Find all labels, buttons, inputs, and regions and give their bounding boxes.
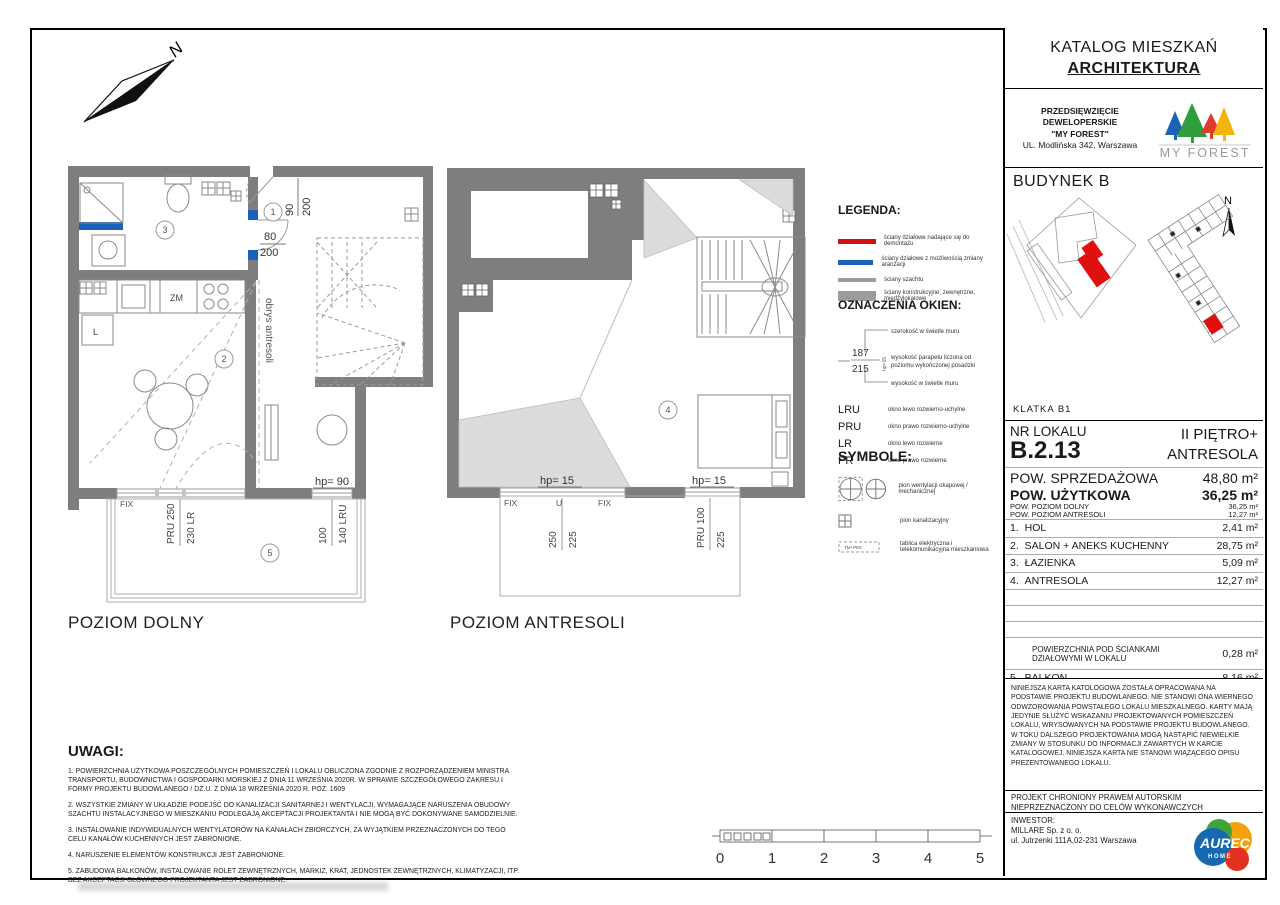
code-desc: okno lewo rozwierno-uchylne [888, 407, 965, 413]
sewage-symbol-icon [838, 514, 890, 528]
room-table: 1. HOL 2,41 m² 2. SALON + ANEKS KUCHENNY… [1005, 519, 1263, 686]
uwagi-item-1: 1. POWIERZCHNIA UŻYTKOWA POSZCZEGÓLNYCH … [68, 768, 520, 795]
empty-row [1005, 621, 1263, 637]
developer-line1: PRZEDSIĘWZIĘCIE [1005, 106, 1155, 117]
antresola-outline [90, 280, 259, 490]
floorplan-upper: 4 hp= 15 FIX U FIX 250 225 hp= 15 PRU 10… [440, 158, 820, 628]
caption-lower: POZIOM DOLNY [68, 613, 204, 633]
room1-marker: 1 [270, 207, 275, 217]
room-no: 3. [1010, 557, 1019, 569]
copyright-line1: PROJEKT CHRONIONY PRAWEM AUTORSKIM [1011, 793, 1257, 803]
sewage-symbol-label: pion kanalizacyjny [900, 518, 949, 524]
floor-label-2: ANTRESOLA [1167, 445, 1258, 465]
ann-width: szerokość w świetle muru [891, 329, 959, 335]
empty-row [1005, 605, 1263, 621]
window-key-title: OZNACZENIA OKIEN: [838, 298, 1003, 312]
symbols: SYMBOLE: pion wentylacji okapowej / mech… [838, 448, 1003, 554]
hp90-label: hp= 90 [315, 476, 349, 488]
table-and-chairs [134, 370, 208, 450]
table-row: 3. ŁAZIENKA 5,09 m² [1005, 554, 1263, 572]
stairwell-shaft [405, 208, 418, 221]
sales-area-label: POW. SPRZEDAŻOWA [1010, 470, 1158, 486]
bathroom-fixtures [80, 175, 241, 266]
window-right [312, 489, 352, 497]
room5-marker: 5 [267, 548, 272, 558]
board-symbol-label: tablica elektryczna i telekomunikacyjna … [900, 541, 989, 553]
level-areas: POW. POZIOM DOLNY 36,25 m² POW. POZIOM A… [1005, 502, 1263, 519]
legend: LEGENDA: ściany działowe nadające się do… [838, 203, 1000, 302]
developer-info: PRZEDSIĘWZIĘCIE DEWELOPERSKIE "MY FOREST… [1005, 106, 1155, 152]
scale-tick-0: 0 [716, 850, 724, 867]
unit-number: B.2.13 [1010, 439, 1087, 463]
fridge-label: L [93, 327, 98, 337]
caption-upper: POZIOM ANTRESOLI [450, 613, 625, 633]
room-name: ANTRESOLA [1025, 575, 1089, 587]
developer-line3: "MY FOREST" [1005, 129, 1155, 140]
copyright-line2: NIEPRZEZNACZONY DO CELÓW WYKONAWCZYCH [1011, 803, 1257, 813]
north-arrow-page: N [72, 36, 197, 131]
slope-edge [580, 280, 632, 398]
window-dim-140lru: 140 LRU [338, 505, 349, 544]
table-row: 1. HOL 2,41 m² [1005, 519, 1263, 537]
win-dim-250: 250 [548, 531, 559, 548]
hp15-left-label: hp= 15 [540, 475, 574, 487]
legend-title: LEGENDA: [838, 203, 1000, 217]
developer-line2: DEWELOPERSKIE [1005, 117, 1155, 128]
example-width: 187 [852, 348, 869, 359]
balcony-lower [107, 499, 365, 602]
ann-height: wysokość w świetle muru [890, 381, 958, 387]
building-box: BUDYNEK B N KLATKA B1 [1005, 167, 1263, 421]
room-no: 2. [1010, 540, 1019, 552]
stairs-upper [697, 237, 805, 337]
unit-highlight [1203, 314, 1223, 335]
my-forest-wordmark: MY FOREST [1160, 146, 1251, 159]
usable-area-label: POW. UŻYTKOWA [1010, 487, 1131, 503]
room-area: 2,41 m² [1222, 522, 1258, 534]
window-key: OZNACZENIA OKIEN: 187 215 hp=15 szerokoś… [838, 298, 1003, 469]
scale-tick-5: 5 [976, 850, 984, 867]
table-row: 2. SALON + ANEKS KUCHENNY 28,75 m² [1005, 537, 1263, 555]
uwagi-title: UWAGI: [68, 743, 528, 760]
code-lru: LRU [838, 404, 870, 416]
site-roads [1007, 220, 1063, 322]
scale-tick-4: 4 [924, 850, 932, 867]
legend-swatch-red [838, 239, 876, 244]
my-forest-logo: MY FOREST [1155, 99, 1255, 159]
radiator [265, 405, 278, 460]
dishwasher-label: ZM [170, 293, 183, 303]
board-label: TM+PEK [844, 545, 862, 550]
floorplan-lower: ZM L obrys antresoli 3 [60, 158, 440, 628]
room-no: 4. [1010, 575, 1019, 587]
room-area: 12,27 m² [1217, 575, 1258, 587]
sales-area-value: 48,80 m² [1203, 470, 1258, 486]
catalog-sheet: { "page": { "title_line1": "KATALOG MIES… [0, 0, 1280, 905]
catalog-title: KATALOG MIESZKAŃ [1005, 39, 1263, 57]
legend-label: ściany działowe z możliwością zmiany ara… [881, 256, 1000, 268]
legend-item: ściany szachtu [838, 277, 1000, 283]
win-dim-225b: 225 [716, 531, 727, 548]
sheet-title-box: KATALOG MIESZKAŃ ARCHITEKTURA [1005, 28, 1263, 88]
door2-height: 200 [260, 247, 278, 259]
window-main [117, 489, 245, 497]
symbols-title: SYMBOLE: [838, 448, 1003, 464]
legend-swatch-shaft [838, 278, 876, 282]
hp15-right-label: hp= 15 [692, 475, 726, 487]
window-upper-main [500, 488, 625, 496]
example-height: 215 [852, 364, 869, 375]
door2-width: 80 [264, 231, 276, 243]
room-area: 28,75 m² [1217, 540, 1258, 552]
code-pru: PRU [838, 421, 870, 433]
chair [317, 415, 347, 445]
north-letter: N [165, 38, 187, 61]
vent-symbol-icon [838, 476, 888, 502]
electric-board-icon: TM+PEK [838, 540, 890, 554]
disclaimer: NINIEJSZA KARTA KATOLOGOWA ZOSTAŁA OPRAC… [1005, 678, 1263, 790]
room-no: 1. [1010, 522, 1019, 534]
legend-item: ściany działowe nadające się do demontaż… [838, 235, 1000, 247]
example-hp: hp=15 [882, 357, 888, 371]
room-name: HOL [1025, 522, 1047, 534]
mezzanine-level-value: 12,27 m² [1228, 510, 1258, 519]
floor-label-1: II PIĘTRO+ [1167, 425, 1258, 445]
door1-width: 90 [284, 204, 296, 216]
room4-marker: 4 [665, 405, 670, 415]
investor-box: INWESTOR: MILLARE Sp. z o. o. ul. Jutrze… [1005, 812, 1263, 876]
uwagi: UWAGI: 1. POWIERZCHNIA UŻYTKOWA POSZCZEG… [68, 743, 528, 893]
window-fix-label: FIX [120, 499, 134, 509]
room-name: ŁAZIENKA [1025, 557, 1076, 569]
fix-left-label: FIX [504, 498, 518, 508]
legend-item: ściany działowe z możliwością zmiany ara… [838, 256, 1000, 268]
window-upper-right [685, 488, 740, 496]
building-footprint [1148, 194, 1263, 342]
bed [698, 395, 790, 486]
door1-height: 200 [301, 198, 313, 216]
vent-symbol-label: pion wentylacji okapowej / mechanicznej [898, 483, 1003, 495]
redacted-line [78, 882, 388, 891]
usable-area-value: 36,25 m² [1202, 487, 1258, 503]
partition-label: POWIERZCHNIA POD ŚCIANKAMI DZIAŁOWYMI W … [1010, 645, 1160, 663]
uwagi-item-2: 2. WSZYSTKIE ZMIANY W UKŁADZIE PODEJŚĆ D… [68, 802, 520, 820]
code-desc: okno prawo rozwierno-uchylne [888, 424, 969, 430]
mezzanine-level-label: POW. POZIOM ANTRESOLI [1010, 510, 1105, 519]
scale-tick-1: 1 [768, 850, 776, 867]
developer-box: PRZEDSIĘWZIĘCIE DEWELOPERSKIE "MY FOREST… [1005, 88, 1263, 168]
window-dim-230lr: 230 LR [186, 512, 197, 544]
building-label: BUDYNEK B [1013, 173, 1110, 191]
discipline-title: ARCHITEKTURA [1005, 60, 1263, 78]
site-plan: N [1005, 190, 1263, 396]
copyright-box: PROJEKT CHRONIONY PRAWEM AUTORSKIM NIEPR… [1005, 790, 1263, 812]
room3-marker: 3 [162, 225, 167, 235]
stairs-dashed [317, 238, 423, 385]
unit-number-box: NR LOKALU B.2.13 II PIĘTRO+ ANTRESOLA [1005, 420, 1263, 468]
uwagi-item-4: 4. NARUSZENIE ELEMENTÓW KONSTRUKCJI JEST… [68, 852, 520, 861]
scale-tick-3: 3 [872, 850, 880, 867]
table-row: 4. ANTRESOLA 12,27 m² [1005, 572, 1263, 590]
win-dim-pru100: PRU 100 [696, 507, 707, 548]
u-label: U [556, 498, 562, 508]
legend-swatch-blue [838, 260, 873, 265]
room-area: 5,09 m² [1222, 557, 1258, 569]
window-key-diagram: 187 215 hp=15 szerokość w świetle muru w… [838, 316, 1003, 394]
kitchen-counter [79, 280, 245, 345]
room2-marker: 2 [221, 354, 226, 364]
room-name: SALON + ANEKS KUCHENNY [1025, 540, 1169, 552]
ann-sill2: poziomu wykończonej posadzki [891, 363, 975, 369]
void-over-lower [471, 191, 588, 258]
aurec-home-logo: AUREC HOME [1193, 817, 1255, 873]
areas-box: POW. SPRZEDAŻOWA 48,80 m² POW. UŻYTKOWA … [1005, 467, 1263, 502]
fix-right-label: FIX [598, 498, 612, 508]
ann-sill1: wysokość parapetu liczona od [890, 355, 971, 361]
klatka-label: KLATKA B1 [1013, 404, 1071, 415]
developer-address: UL. Modlińska 342, Warszawa [1005, 140, 1155, 151]
aurec-home-label: HOME [1208, 854, 1232, 860]
window-dim-pru250: PRU 250 [166, 503, 177, 544]
aurec-wordmark: AUREC [1199, 835, 1251, 851]
legend-label: ściany działowe nadające się do demontaż… [884, 235, 1000, 247]
symbol-vent-row: pion wentylacji okapowej / mechanicznej [838, 476, 1003, 502]
symbol-sewage-row: pion kanalizacyjny [838, 514, 1003, 528]
scale-bar: 0 1 2 3 4 5 [712, 826, 1002, 874]
scale-tick-2: 2 [820, 850, 828, 867]
win-dim-225: 225 [568, 531, 579, 548]
legend-label: ściany szachtu [884, 277, 923, 283]
symbol-board-row: TM+PEK tablica elektryczna i telekomunik… [838, 540, 1003, 554]
window-dim-100: 100 [318, 527, 329, 544]
uwagi-item-3: 3. INSTALOWANIE INDYWIDUALNYCH WENTYLATO… [68, 827, 520, 845]
empty-row [1005, 589, 1263, 605]
code-desc: okno lewo rozwierne [888, 441, 943, 447]
partition-value: 0,28 m² [1222, 648, 1258, 660]
partition-row: POWIERZCHNIA POD ŚCIANKAMI DZIAŁOWYMI W … [1005, 637, 1263, 669]
antresola-outline-label: obrys antresoli [263, 298, 274, 363]
